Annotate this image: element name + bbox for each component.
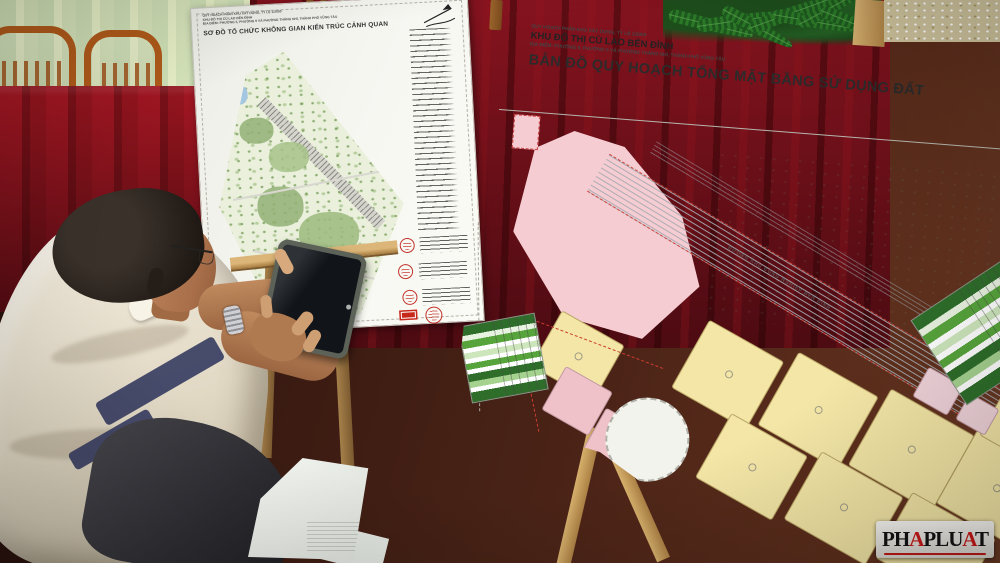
watermark-underline [884,553,985,556]
right-board-title: BẢN ĐỒ QUY HOẠCH TỔNG MẶT BẰNG SỬ DỤNG Đ… [528,52,988,104]
red-seal-stamp-icon [399,238,415,254]
signature-text-lines [422,287,471,305]
watermark-letters: PH [882,527,909,551]
north-arrow-icon [421,3,458,29]
green-area [268,141,310,173]
watermark-letter-red: A [962,527,975,551]
signature-text-lines [419,261,468,279]
watermark-letter-red: A [909,527,923,551]
phapluat-watermark: PHAPLUAT [876,521,994,558]
pink-parcel-small [512,114,541,150]
finger [260,294,273,318]
watermark-text: PHAPLUAT [882,529,988,550]
signature-text-lines [419,235,468,253]
red-seal-stamp-icon [398,264,414,280]
tablet-home-button [346,304,352,310]
red-seal-stamp-icon [402,290,418,306]
wooden-chair [84,30,162,94]
glitter-decoration [884,0,1000,42]
watermark-letters: PLU [923,527,962,551]
green-area [239,117,274,145]
red-seal-stamp-icon [425,306,443,324]
photo-scene: QUY HOẠCH PHÂN KHU XÂY DỰNG, TỶ LỆ 1/200… [0,0,1000,563]
right-board-content: QUY HOẠCH PHÂN KHU XÂY DỰNG, TỶ LỆ 1/200… [470,18,1000,563]
easel-top-corner [852,0,887,47]
consultant-logo-mark [399,310,417,321]
watermark-letters: T [975,527,988,551]
legend-list [409,28,460,232]
flag-pole [489,0,503,30]
landuse-statistics-table [459,314,548,403]
title-block [391,234,477,324]
